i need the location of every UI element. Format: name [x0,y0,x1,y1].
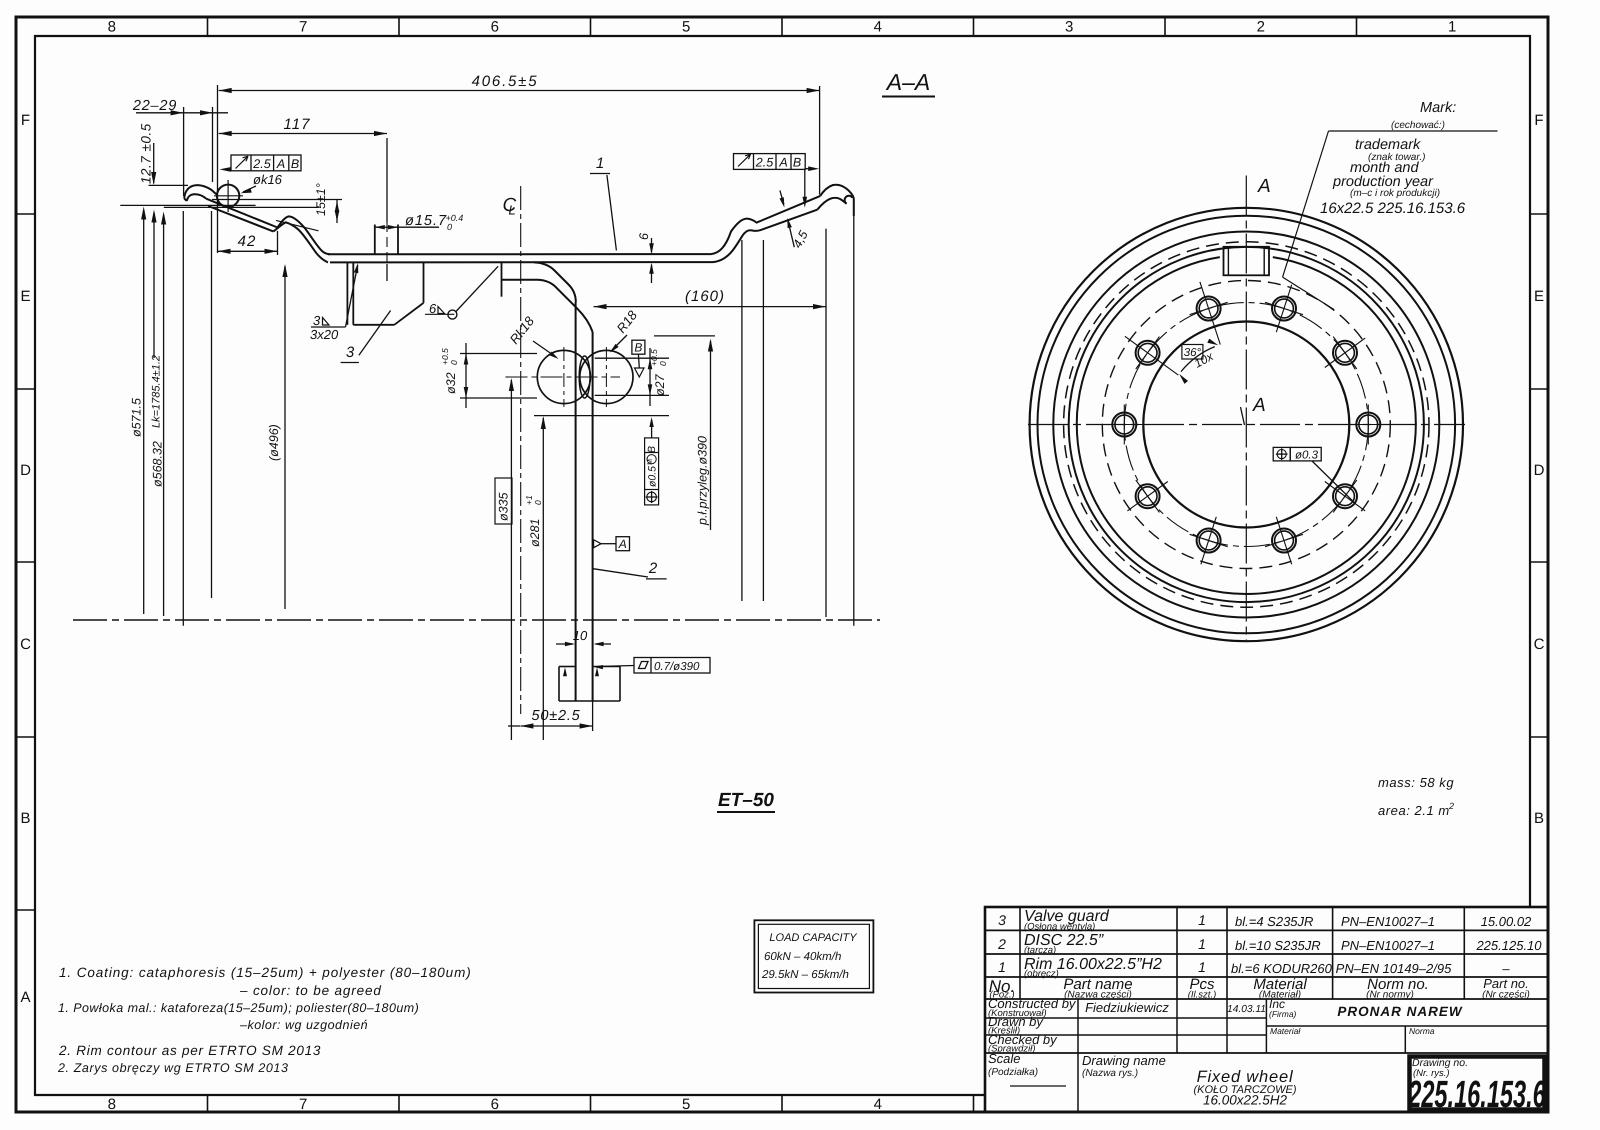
svg-text:15.00.02: 15.00.02 [1481,914,1532,929]
svg-text:D: D [1534,462,1545,479]
svg-text:1. Coating: cataphoresis (1: 1. Coating: cataphoresis (15–25um) + pol… [59,965,472,980]
svg-text:bl.=10 S235JR: bl.=10 S235JR [1235,938,1321,953]
svg-text:50±2.5: 50±2.5 [531,708,580,724]
svg-text:1: 1 [1198,959,1206,975]
svg-text:8: 8 [108,19,116,36]
svg-text:5: 5 [682,19,690,36]
svg-text:Materiał: Materiał [1270,1026,1301,1036]
svg-text:A: A [20,989,30,1006]
svg-text:A: A [618,537,627,551]
svg-text:8: 8 [108,1096,116,1113]
svg-text:2: 2 [648,560,658,577]
svg-text:1: 1 [998,959,1006,975]
svg-text:2: 2 [1257,19,1265,36]
svg-text:16.00x22.5H2: 16.00x22.5H2 [1203,1093,1288,1108]
svg-text:117: 117 [284,116,311,133]
svg-text:L: L [509,203,516,218]
svg-text:B: B [20,810,30,827]
svg-text:trademark: trademark [1355,137,1421,153]
svg-text:(Podziałka): (Podziałka) [988,1067,1038,1078]
svg-text:4: 4 [874,1096,882,1113]
svg-text:A: A [778,156,787,170]
svg-text:E: E [20,288,30,305]
svg-text:0.7/ø390: 0.7/ø390 [654,661,700,673]
svg-text:area: 2.1 m: area: 2.1 m [1378,803,1450,818]
svg-text:0: 0 [658,361,668,366]
svg-text:1: 1 [1448,19,1456,36]
svg-text:– color: to be agreed: – color: to be agreed [239,983,382,998]
svg-text:PN–EN10027–1: PN–EN10027–1 [1341,914,1435,929]
svg-text:29.5kN – 65km/h: 29.5kN – 65km/h [761,969,849,981]
svg-text:(ø496): (ø496) [267,424,281,461]
svg-text:E: E [1534,288,1544,305]
svg-text:2. Rim contour as per ETR: 2. Rim contour as per ETRTO SM 2013 [58,1043,321,1058]
svg-text:C: C [20,636,31,653]
svg-text:7: 7 [299,19,307,36]
svg-text:ø335: ø335 [497,492,511,521]
svg-text:10: 10 [573,628,588,643]
svg-text:(Osłona wentyla): (Osłona wentyla) [1024,922,1095,933]
svg-text:A–A: A–A [885,69,930,95]
svg-text:ø32: ø32 [444,372,458,394]
svg-text:ø281: ø281 [528,519,542,548]
svg-text:225.125.10: 225.125.10 [1475,938,1542,953]
svg-text:5: 5 [682,1096,690,1113]
svg-text:3: 3 [1065,19,1073,36]
svg-text:2.5: 2.5 [252,157,270,171]
svg-text:A: A [1257,176,1271,197]
svg-text:ø0.3: ø0.3 [1295,450,1319,462]
svg-text:2.5: 2.5 [755,156,773,170]
svg-text:ø568.32: ø568.32 [151,441,165,487]
svg-text:ø0.5: ø0.5 [647,466,659,487]
svg-text:–: – [1501,961,1510,976]
svg-text:(Firma): (Firma) [1269,1009,1297,1019]
svg-text:PN–EN 10149–2/95: PN–EN 10149–2/95 [1336,961,1452,976]
svg-text:mass: 58 kg: mass: 58 kg [1378,775,1454,790]
svg-text:0: 0 [449,360,459,365]
svg-text:F: F [21,112,30,129]
svg-text:PN–EN10027–1: PN–EN10027–1 [1341,938,1435,953]
svg-text:2. Zarys obręczy wg ETRTO: 2. Zarys obręczy wg ETRTO SM 2013 [57,1061,289,1075]
svg-text:4: 4 [874,19,882,36]
svg-text:12.7 ±0.5: 12.7 ±0.5 [139,123,154,184]
svg-text:F: F [1534,112,1543,129]
svg-text:6: 6 [491,1096,499,1113]
svg-text:(Nr normy): (Nr normy) [1366,990,1414,1001]
svg-text:(obręcz): (obręcz) [1024,969,1059,980]
svg-text:M: M [647,459,654,465]
svg-text:D: D [20,462,31,479]
svg-text:0: 0 [447,222,452,232]
svg-text:6: 6 [637,233,651,240]
svg-text:B: B [291,157,299,171]
svg-text:B: B [1534,810,1544,827]
svg-text:Lk=1785.4±1.2: Lk=1785.4±1.2 [151,355,163,428]
svg-text:(cechować:): (cechować:) [1391,120,1445,131]
svg-text:bl.=6 KODUR260: bl.=6 KODUR260 [1231,961,1333,976]
svg-text:1: 1 [1198,912,1206,928]
svg-text:(160): (160) [685,288,725,305]
svg-text:0: 0 [533,500,543,505]
svg-text:(Nr części): (Nr części) [1482,990,1530,1001]
svg-text:bl.=4 S235JR: bl.=4 S235JR [1235,914,1313,929]
svg-text:(tarcza): (tarcza) [1024,945,1056,956]
svg-text:–kolor: wg uzgodnień: –kolor: wg uzgodnień [239,1018,368,1032]
svg-text:(Il.szt.): (Il.szt.) [1188,990,1217,1001]
svg-text:B: B [634,341,642,355]
svg-text:B: B [793,156,801,170]
svg-text:225.16.153.6: 225.16.153.6 [1408,1074,1547,1116]
svg-text:1: 1 [1198,936,1206,952]
svg-text:Norma: Norma [1409,1026,1435,1036]
svg-text:ø27: ø27 [653,373,667,396]
svg-text:A: A [276,157,285,171]
svg-text:LOAD CAPACITY: LOAD CAPACITY [769,932,857,944]
svg-text:42: 42 [238,233,257,250]
svg-text:2: 2 [997,936,1006,952]
svg-text:14.03.11: 14.03.11 [1227,1004,1266,1015]
svg-text:ø571.5: ø571.5 [130,398,144,437]
svg-text:Fiedziukiewicz: Fiedziukiewicz [1085,1000,1169,1015]
svg-text:(m–c i rok produkcji): (m–c i rok produkcji) [1350,188,1440,199]
svg-text:B: B [646,446,658,453]
svg-text:(Nazwa rys.): (Nazwa rys.) [1082,1068,1138,1079]
svg-text:2: 2 [1448,801,1454,811]
svg-text:7: 7 [299,1096,307,1113]
svg-text:p.ł.przyleg.ø390: p.ł.przyleg.ø390 [696,436,710,526]
svg-text:60kN – 40km/h: 60kN – 40km/h [764,951,841,963]
svg-text:3: 3 [998,912,1006,928]
svg-text:PRONAR NAREW: PRONAR NAREW [1337,1004,1463,1019]
svg-text:ET–50: ET–50 [718,790,774,811]
svg-text:22–29: 22–29 [132,98,177,114]
svg-text:øk16: øk16 [253,172,283,187]
svg-text:1. Powłoka mal.: kataforeza(: 1. Powłoka mal.: kataforeza(15–25um); po… [58,1001,419,1015]
svg-text:C: C [1534,636,1545,653]
svg-text:406.5±5: 406.5±5 [472,73,539,90]
svg-text:Mark:: Mark: [1420,100,1456,116]
svg-text:3: 3 [346,344,355,361]
svg-text:6: 6 [491,19,499,36]
svg-text:16x22.5 225.16.153.6: 16x22.5 225.16.153.6 [1320,200,1466,217]
svg-text:Scale: Scale [988,1051,1021,1066]
svg-text:1: 1 [596,155,604,172]
svg-text:Drawing name: Drawing name [1082,1053,1166,1068]
svg-text:3x20: 3x20 [310,327,339,342]
svg-text:A: A [1252,395,1266,416]
svg-text:3: 3 [313,313,321,328]
